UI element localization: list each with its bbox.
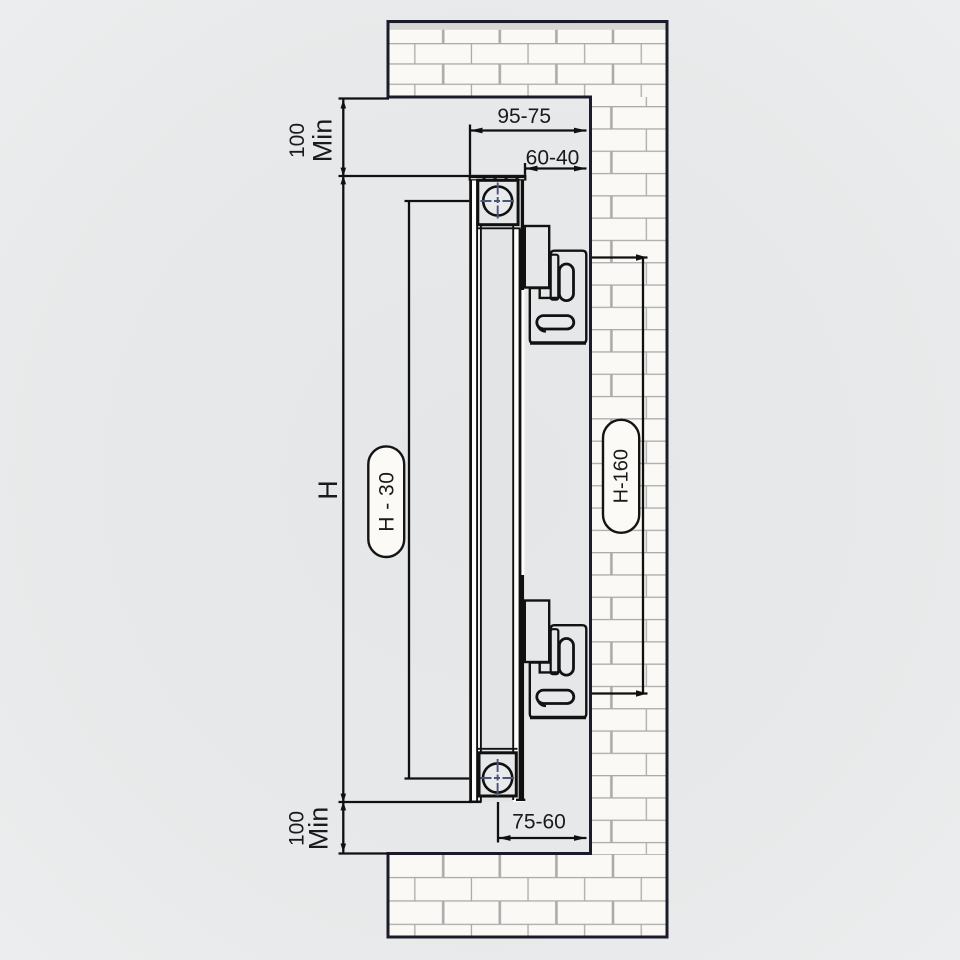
svg-text:100Min: 100Min [286, 119, 337, 163]
svg-text:H: H [313, 480, 343, 500]
svg-text:75-60: 75-60 [512, 811, 566, 834]
svg-text:60-40: 60-40 [526, 147, 580, 170]
svg-text:95-75: 95-75 [497, 105, 551, 128]
svg-text:H - 30: H - 30 [376, 472, 399, 532]
svg-text:H-160: H-160 [610, 449, 632, 503]
svg-text:100Min: 100Min [286, 807, 334, 851]
